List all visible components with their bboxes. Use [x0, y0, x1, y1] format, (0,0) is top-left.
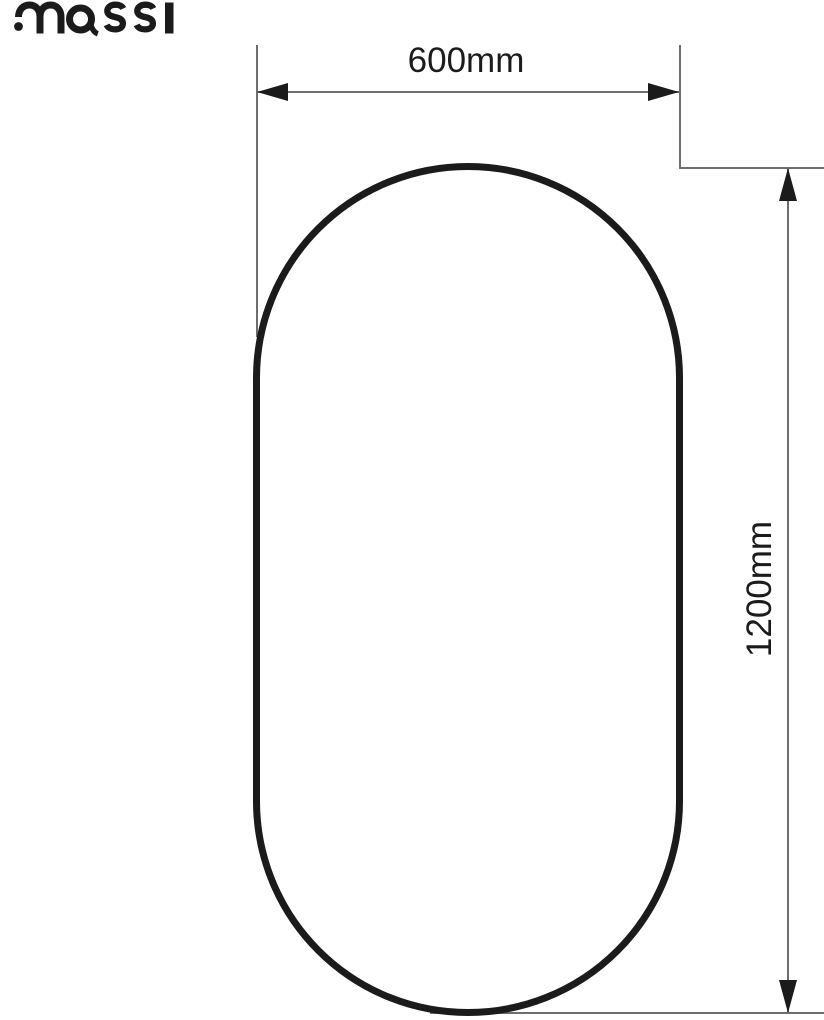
height-dimension-label: 1200mm — [742, 509, 778, 669]
width-arrowhead-left-icon — [257, 83, 288, 101]
height-extension-line-top — [679, 167, 824, 169]
height-dimension-line — [787, 169, 789, 1013]
width-extension-line-right — [679, 45, 681, 169]
width-arrowhead-right-icon — [648, 83, 679, 101]
mirror-outline — [253, 163, 683, 1016]
massi-logo — [8, 0, 176, 38]
height-arrowhead-top-icon — [779, 168, 797, 201]
massi-logo-icon — [8, 0, 176, 38]
width-dimension-line — [257, 91, 679, 93]
dimension-diagram: 600mm 1200mm — [0, 0, 824, 1020]
height-arrowhead-bottom-icon — [779, 980, 797, 1013]
width-dimension-label: 600mm — [366, 43, 566, 79]
